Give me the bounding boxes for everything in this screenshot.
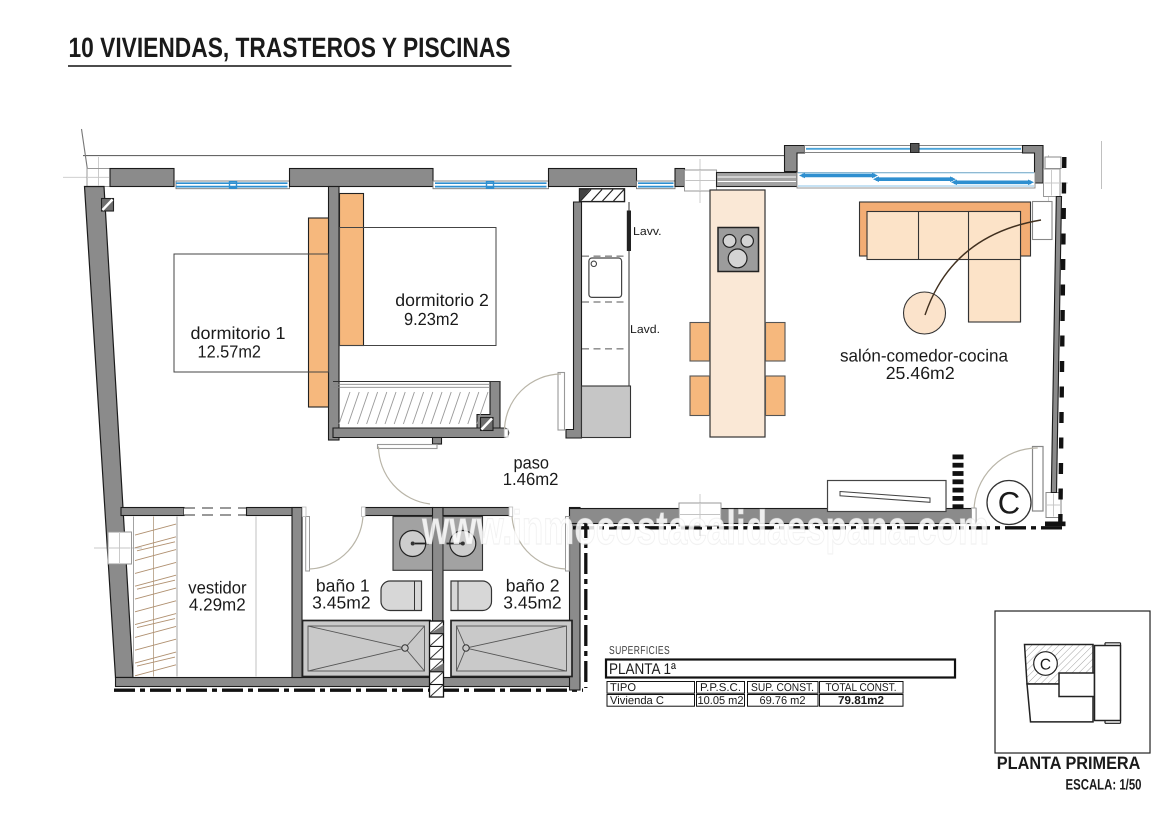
svg-text:Vivienda C: Vivienda C bbox=[610, 695, 664, 707]
svg-text:25.46m2: 25.46m2 bbox=[886, 363, 955, 383]
svg-text:1.46m2: 1.46m2 bbox=[503, 469, 559, 489]
svg-text:PLANTA 1ª: PLANTA 1ª bbox=[609, 661, 676, 678]
svg-text:3.45m2: 3.45m2 bbox=[312, 593, 371, 613]
svg-text:12.57m2: 12.57m2 bbox=[198, 342, 262, 362]
svg-text:TIPO: TIPO bbox=[610, 682, 636, 694]
svg-text:PLANTA PRIMERA: PLANTA PRIMERA bbox=[997, 753, 1141, 773]
svg-text:C: C bbox=[998, 486, 1020, 521]
svg-text:www.inmocostacalidaespana.com: www.inmocostacalidaespana.com bbox=[421, 501, 989, 555]
svg-text:9.23m2: 9.23m2 bbox=[404, 309, 459, 329]
svg-text:3.45m2: 3.45m2 bbox=[503, 593, 562, 613]
svg-text:P.P.S.C.: P.P.S.C. bbox=[700, 682, 741, 694]
svg-text:dormitorio 2: dormitorio 2 bbox=[395, 290, 489, 310]
svg-text:69.76 m2: 69.76 m2 bbox=[760, 695, 806, 707]
svg-text:ESCALA: 1/50: ESCALA: 1/50 bbox=[1066, 777, 1142, 794]
svg-text:Lavd.: Lavd. bbox=[630, 324, 660, 336]
svg-text:Lavv.: Lavv. bbox=[633, 226, 662, 238]
svg-text:TOTAL CONST.: TOTAL CONST. bbox=[826, 682, 897, 694]
svg-text:79.81m2: 79.81m2 bbox=[838, 695, 884, 707]
svg-text:10 VIVIENDAS, TRASTEROS Y PISC: 10 VIVIENDAS, TRASTEROS Y PISCINAS bbox=[69, 32, 511, 63]
svg-text:SUP. CONST.: SUP. CONST. bbox=[751, 682, 814, 694]
svg-text:4.29m2: 4.29m2 bbox=[189, 594, 246, 614]
svg-text:SUPERFICIES: SUPERFICIES bbox=[609, 645, 670, 657]
svg-text:dormitorio 1: dormitorio 1 bbox=[191, 323, 286, 343]
svg-text:10.05 m2: 10.05 m2 bbox=[698, 695, 744, 707]
svg-text:C: C bbox=[1040, 657, 1051, 674]
